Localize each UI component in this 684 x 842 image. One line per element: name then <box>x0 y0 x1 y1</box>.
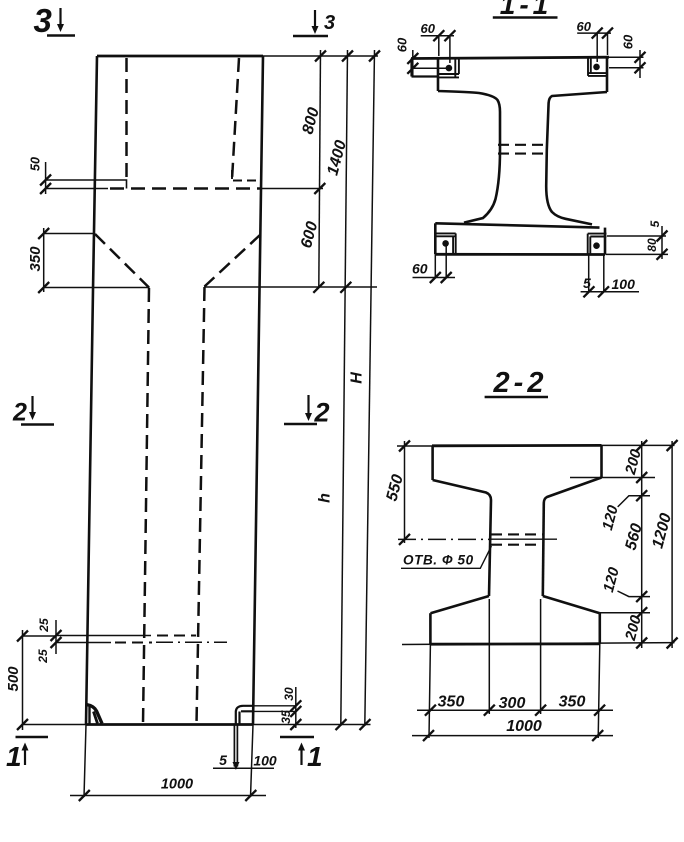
svg-text:1200: 1200 <box>649 511 675 550</box>
svg-text:350: 350 <box>27 246 44 272</box>
svg-text:120: 120 <box>599 503 622 532</box>
svg-text:550: 550 <box>384 473 407 503</box>
svg-text:1: 1 <box>6 741 22 772</box>
svg-text:3: 3 <box>324 12 335 34</box>
svg-text:2-2: 2-2 <box>493 367 548 399</box>
svg-text:300: 300 <box>499 695 526 712</box>
svg-text:1: 1 <box>307 741 323 772</box>
svg-text:350: 350 <box>438 694 465 711</box>
svg-text:600: 600 <box>298 220 321 250</box>
svg-text:60: 60 <box>412 261 428 277</box>
svg-text:50: 50 <box>28 157 42 171</box>
svg-text:ОТВ. Ф 50: ОТВ. Ф 50 <box>403 553 474 568</box>
svg-text:H: H <box>349 372 366 384</box>
svg-text:35: 35 <box>279 710 293 724</box>
svg-text:h: h <box>317 493 334 503</box>
svg-text:5: 5 <box>648 220 662 227</box>
svg-text:30: 30 <box>282 687 296 701</box>
svg-text:60: 60 <box>577 19 592 34</box>
svg-text:120: 120 <box>600 565 623 594</box>
svg-text:1000: 1000 <box>506 718 542 735</box>
svg-text:3: 3 <box>34 2 52 39</box>
svg-text:1000: 1000 <box>161 777 193 793</box>
svg-text:2: 2 <box>12 399 27 427</box>
svg-text:60: 60 <box>620 34 635 49</box>
svg-text:80: 80 <box>645 238 659 252</box>
svg-text:350: 350 <box>559 694 586 711</box>
svg-text:100: 100 <box>253 753 277 769</box>
svg-text:25: 25 <box>37 618 51 633</box>
svg-text:5: 5 <box>583 275 591 291</box>
svg-text:60: 60 <box>421 21 436 36</box>
svg-text:5: 5 <box>219 752 227 768</box>
svg-text:100: 100 <box>612 276 636 292</box>
svg-text:25: 25 <box>36 649 50 664</box>
svg-text:500: 500 <box>5 666 22 692</box>
svg-text:60: 60 <box>394 37 409 52</box>
